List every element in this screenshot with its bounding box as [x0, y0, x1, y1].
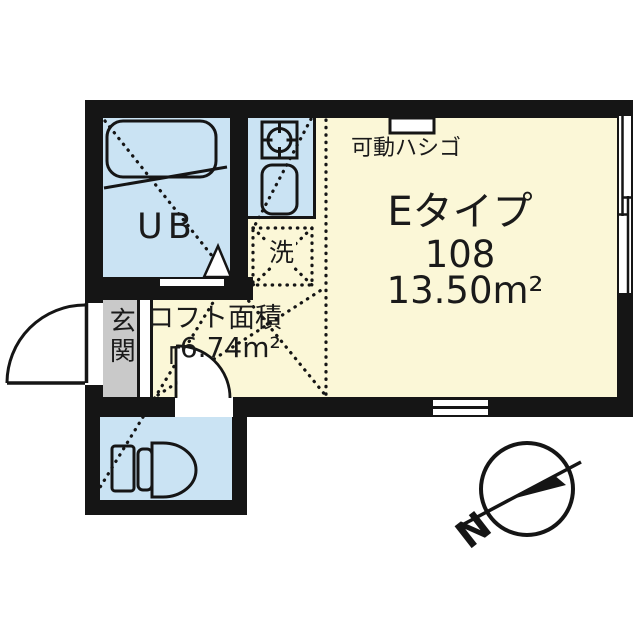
movable-ladder-label: 可動ハシゴ: [351, 137, 461, 160]
entrance-label: 玄関: [106, 307, 133, 367]
entrance-door-icon: [7, 303, 87, 383]
ub-door-threshold: [158, 277, 226, 288]
compass-north-label: N: [447, 503, 499, 557]
entrance-door-opening: [85, 303, 103, 385]
wall-top: [85, 100, 633, 118]
kitchen-counter: [248, 118, 316, 219]
toilet-door-opening: [175, 397, 233, 417]
laundry-label: 洗: [267, 240, 296, 266]
wall-toilet-right: [232, 417, 247, 515]
loft-area-value: ┌6.74m²: [163, 333, 281, 362]
room-type-label: Eタイプ: [340, 191, 580, 233]
wall-bottom: [85, 397, 633, 417]
bottom-window-slit-2: [433, 409, 488, 415]
wall-ub-kitchen: [230, 118, 248, 277]
wall-toilet-bottom: [85, 500, 247, 515]
compass-icon: N: [447, 443, 581, 557]
right-window: [617, 116, 633, 293]
room-area-label: 13.50m²: [340, 272, 590, 311]
wall-left-upper: [85, 100, 103, 303]
toilet-floor: [100, 417, 232, 500]
unit-bath-floor: [103, 118, 230, 277]
unit-bath-label: UB: [127, 209, 207, 246]
loft-area-title: ロフト面積: [147, 305, 282, 333]
bottom-window-slit-1: [433, 400, 488, 406]
compass-needle: [504, 463, 577, 501]
floorplan-canvas: N UB 玄関 洗 可動ハシゴ Eタイプ 108 13.50m² ロフト面積 ┌…: [0, 0, 640, 640]
